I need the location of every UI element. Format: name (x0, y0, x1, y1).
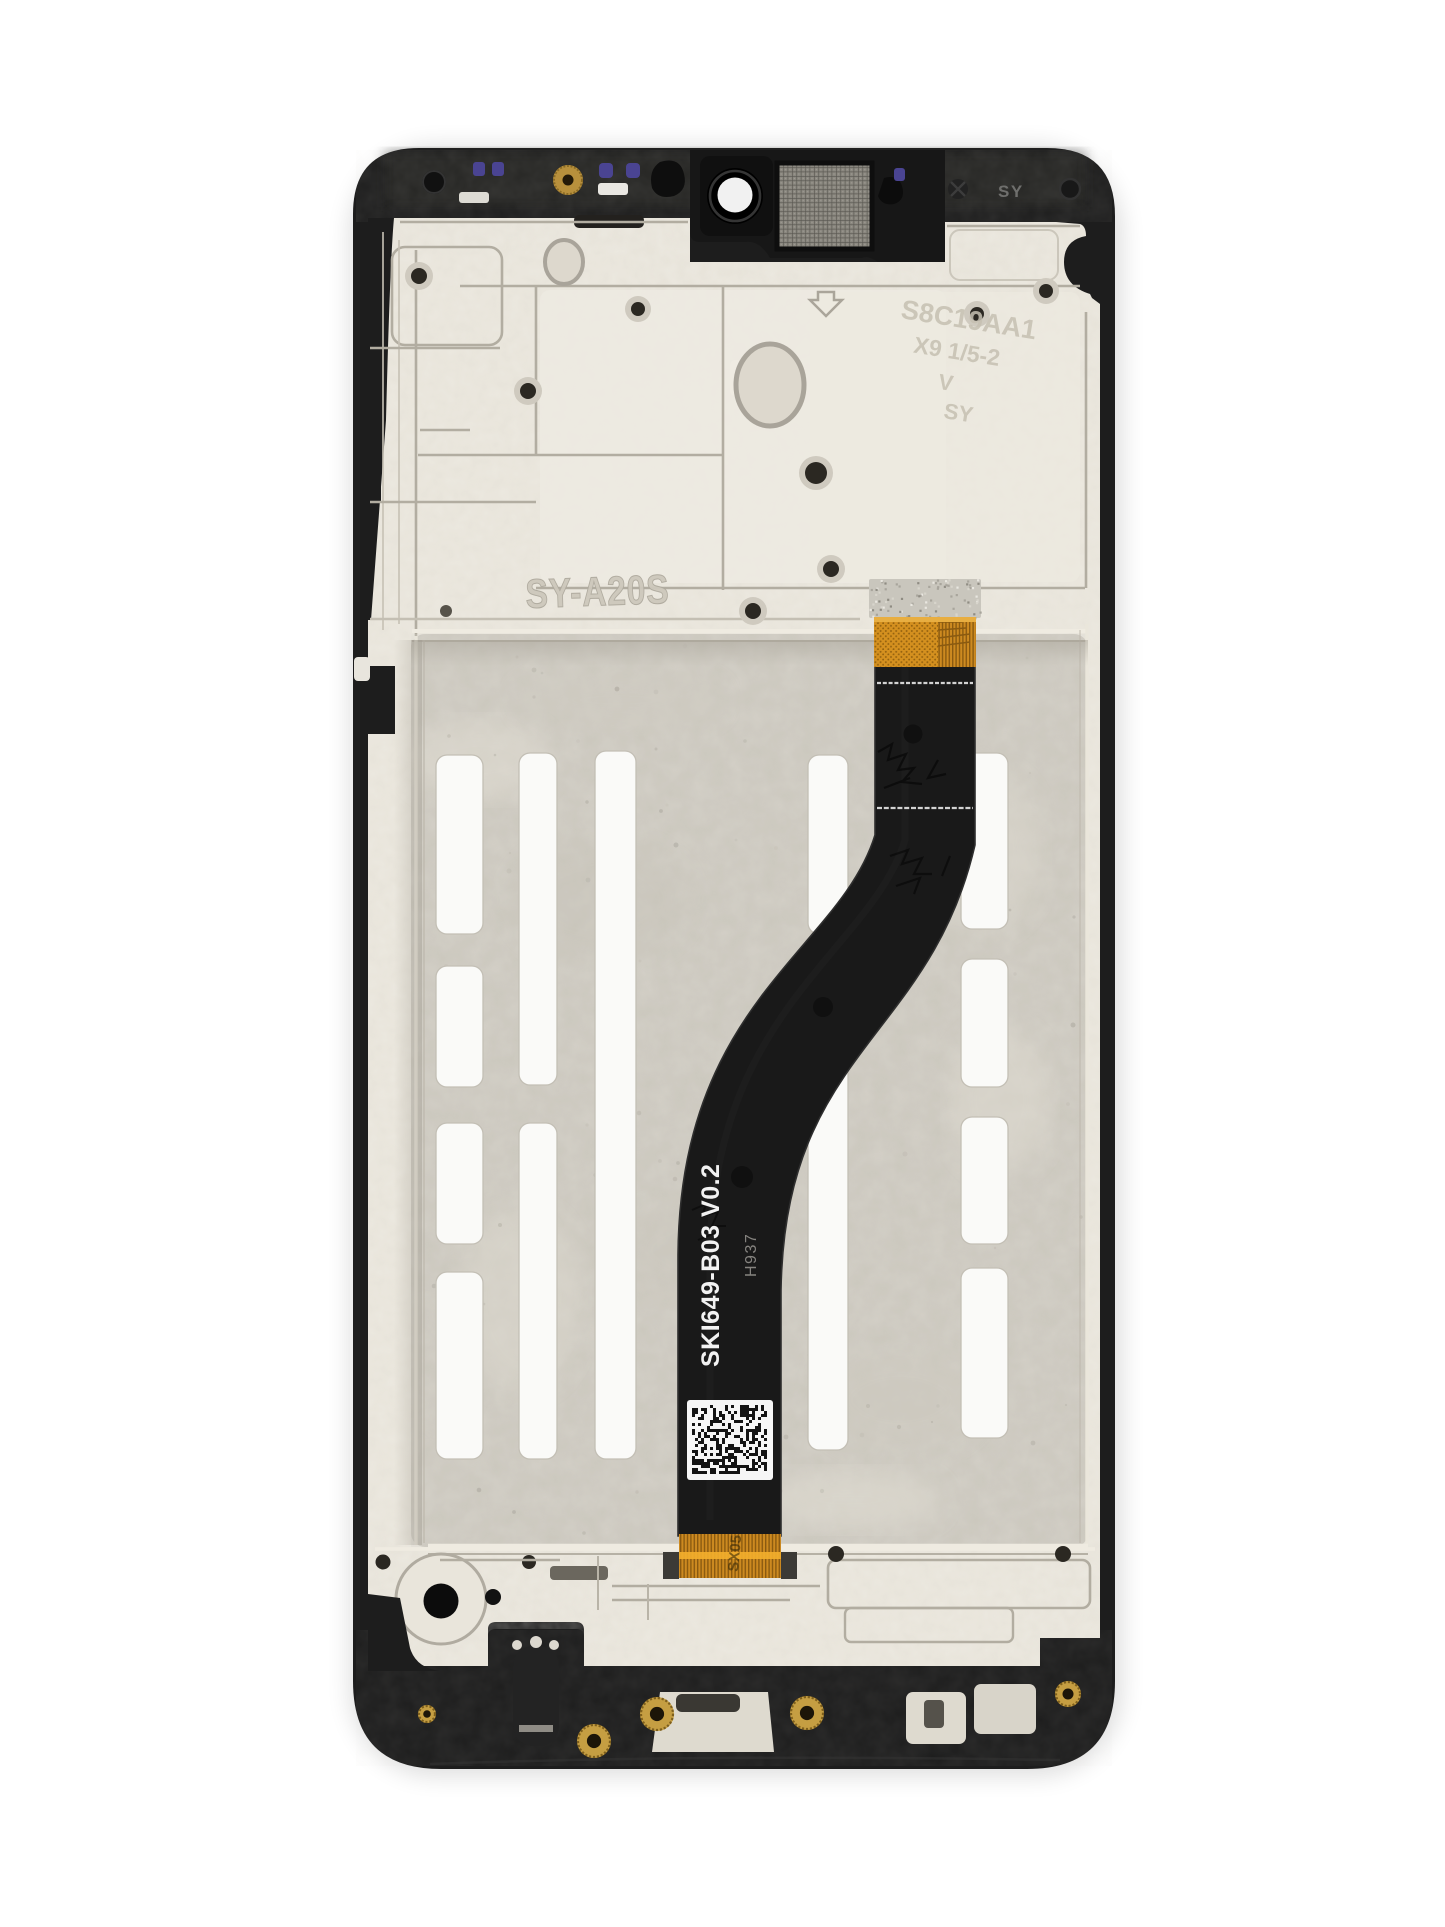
svg-text:SY-A20S: SY-A20S (525, 566, 671, 617)
svg-text:SX05: SX05 (725, 1534, 745, 1572)
svg-text:SKI649-B03 V0.2: SKI649-B03 V0.2 (697, 1164, 725, 1367)
svg-text:SY: SY (942, 398, 975, 427)
svg-text:SY: SY (998, 182, 1024, 201)
svg-text:H937: H937 (743, 1233, 760, 1277)
